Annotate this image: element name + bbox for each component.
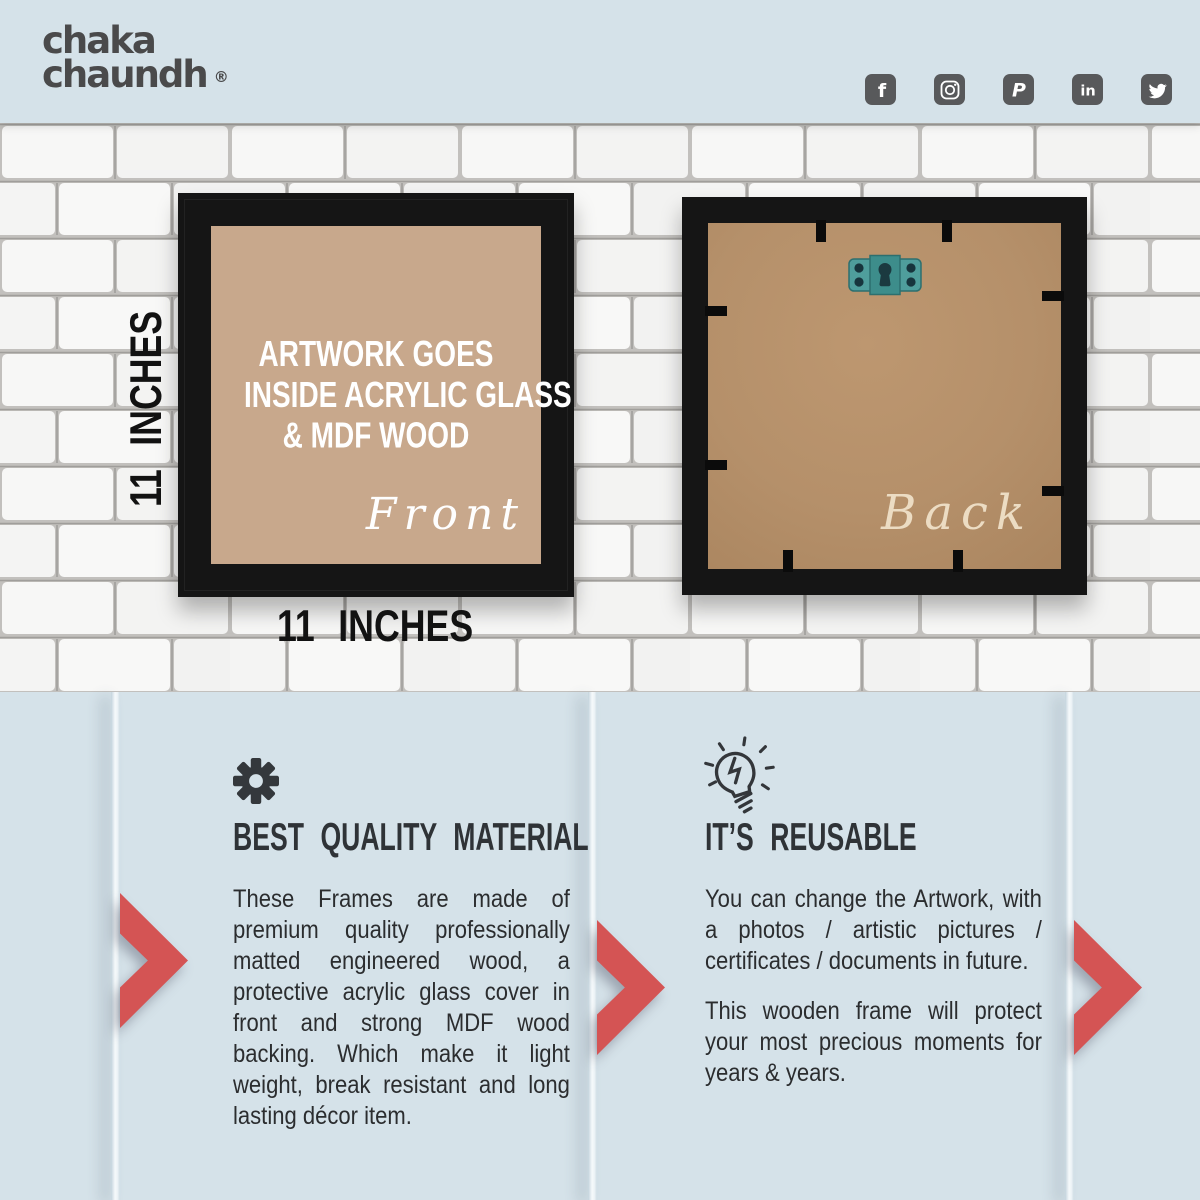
pinterest-icon[interactable]: P <box>1003 74 1034 105</box>
frame-front-view: ARTWORK GOES INSIDE ACRYLIC GLASS & MDF … <box>178 193 574 597</box>
dimension-label-horizontal: 11 INCHES <box>277 601 473 651</box>
chevron-icon <box>1074 920 1142 1055</box>
retaining-clip <box>953 550 963 572</box>
instagram-icon[interactable] <box>934 74 965 105</box>
fold-strip <box>1065 692 1074 1200</box>
artwork-note-line3: & MDF WOOD <box>244 415 508 456</box>
retaining-clip <box>705 460 727 470</box>
feature-heading-reusable: IT’S REUSABLE <box>705 816 917 860</box>
artwork-note-line2: INSIDE ACRYLIC GLASS <box>244 375 508 416</box>
feature-body-reusable-1: You can change the Artwork, with a photo… <box>705 884 1042 977</box>
brand-logo: chaka chaundh ® <box>42 24 207 92</box>
svg-text:f: f <box>877 80 886 100</box>
fold-strip <box>111 692 120 1200</box>
registered-mark: ® <box>214 60 229 94</box>
retaining-clip <box>816 220 826 242</box>
retaining-clip <box>1042 486 1064 496</box>
front-matte: ARTWORK GOES INSIDE ACRYLIC GLASS & MDF … <box>211 226 541 564</box>
feature-body-quality: These Frames are made of premium quality… <box>233 884 570 1132</box>
linkedin-icon[interactable]: in <box>1072 74 1103 105</box>
feature-heading-quality: BEST QUALITY MATERIAL <box>233 816 589 860</box>
retaining-clip <box>783 550 793 572</box>
gear-icon <box>233 758 279 804</box>
dimension-label-vertical: 11 INCHES <box>121 311 171 507</box>
svg-text:in: in <box>1080 83 1095 99</box>
frame-back-view: Back <box>682 197 1087 595</box>
back-caption: Back <box>881 485 1033 541</box>
fold-strip <box>588 692 597 1200</box>
artwork-note: ARTWORK GOES INSIDE ACRYLIC GLASS & MDF … <box>244 334 508 456</box>
twitter-icon[interactable] <box>1141 74 1172 105</box>
retaining-clip <box>705 306 727 316</box>
chevron-icon <box>120 893 188 1028</box>
artwork-note-line1: ARTWORK GOES <box>244 334 508 375</box>
retaining-clip <box>1042 291 1064 301</box>
chevron-icon <box>597 920 665 1055</box>
retaining-clip <box>942 220 952 242</box>
hanging-bracket-icon <box>848 254 922 296</box>
product-infographic: chaka chaundh ® f P <box>0 0 1200 1200</box>
lightbulb-icon <box>694 734 782 822</box>
brand-logo-line2: chaundh <box>42 53 207 96</box>
facebook-icon[interactable]: f <box>865 74 896 105</box>
svg-text:P: P <box>1012 80 1026 100</box>
header-bar: chaka chaundh ® f P <box>0 0 1200 123</box>
front-caption: Front <box>366 489 525 540</box>
feature-body-reusable-2: This wooden frame will protect your most… <box>705 996 1042 1089</box>
mdf-backboard: Back <box>708 223 1061 569</box>
social-icon-row: f P in <box>865 74 1172 105</box>
